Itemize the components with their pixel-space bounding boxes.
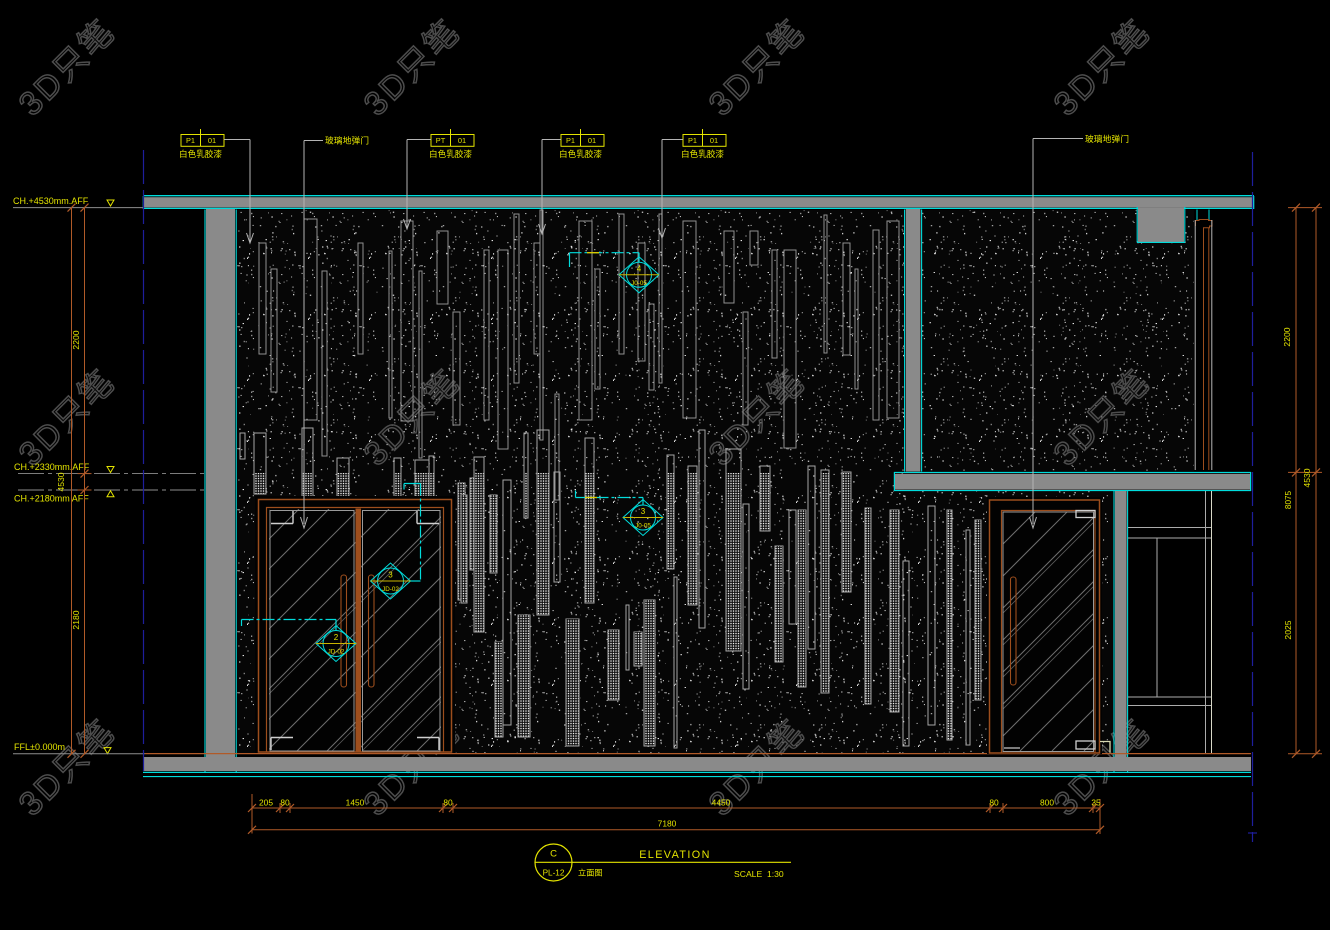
svg-text:玻璃地弹门: 玻璃地弹门 [1085, 133, 1129, 144]
svg-text:3: 3 [388, 571, 393, 580]
svg-text:4450: 4450 [712, 798, 731, 808]
svg-text:3: 3 [641, 507, 646, 516]
svg-text:立面图: 立面图 [578, 868, 603, 878]
svg-text:2: 2 [334, 633, 339, 642]
svg-text:ELEVATION: ELEVATION [639, 849, 711, 861]
svg-text:01: 01 [588, 136, 596, 145]
svg-text:01: 01 [710, 136, 718, 145]
svg-text:35: 35 [1091, 798, 1101, 808]
svg-text:PL-12: PL-12 [543, 869, 565, 878]
svg-text:4: 4 [637, 264, 642, 273]
svg-text:80: 80 [443, 798, 453, 808]
svg-text:01: 01 [458, 136, 466, 145]
svg-text:C: C [550, 849, 557, 860]
svg-text:白色乳胶漆: 白色乳胶漆 [429, 148, 472, 159]
svg-text:PT: PT [436, 136, 446, 145]
svg-text:白色乳胶漆: 白色乳胶漆 [681, 148, 724, 159]
svg-text:P1: P1 [186, 136, 195, 145]
svg-text:4530: 4530 [1302, 468, 1312, 487]
svg-text:205: 205 [259, 798, 273, 808]
svg-text:4530: 4530 [56, 472, 66, 491]
svg-text:P1: P1 [688, 136, 697, 145]
svg-text:2025: 2025 [1283, 620, 1293, 639]
svg-text:80: 80 [989, 798, 999, 808]
svg-text:2180: 2180 [71, 610, 81, 629]
svg-text:2200: 2200 [71, 330, 81, 349]
svg-text:800: 800 [1040, 798, 1054, 808]
svg-text:CH.+2330mm.AFF: CH.+2330mm.AFF [14, 462, 90, 472]
svg-text:01: 01 [208, 136, 216, 145]
svg-text:1450: 1450 [346, 798, 365, 808]
svg-text:J0-05: J0-05 [631, 280, 647, 287]
svg-text:2200: 2200 [1282, 327, 1292, 346]
svg-text:8075: 8075 [1284, 490, 1293, 509]
svg-text:P1: P1 [566, 136, 575, 145]
svg-text:7180: 7180 [658, 819, 677, 829]
svg-text:白色乳胶漆: 白色乳胶漆 [559, 148, 602, 159]
svg-text:80: 80 [280, 798, 290, 808]
svg-text:J0-05: J0-05 [635, 523, 651, 530]
svg-text:JD-02: JD-02 [382, 586, 399, 593]
svg-text:SCALE 1:30: SCALE 1:30 [734, 869, 784, 879]
svg-text:白色乳胶漆: 白色乳胶漆 [179, 148, 222, 159]
svg-text:JD-02: JD-02 [328, 649, 345, 656]
svg-text:玻璃地弹门: 玻璃地弹门 [325, 135, 369, 146]
svg-text:CH.+2180mm AFF: CH.+2180mm AFF [14, 494, 89, 504]
svg-text:FFL±0.000m: FFL±0.000m [14, 742, 65, 752]
svg-text:CH.+4530mm.AFF: CH.+4530mm.AFF [13, 196, 89, 206]
